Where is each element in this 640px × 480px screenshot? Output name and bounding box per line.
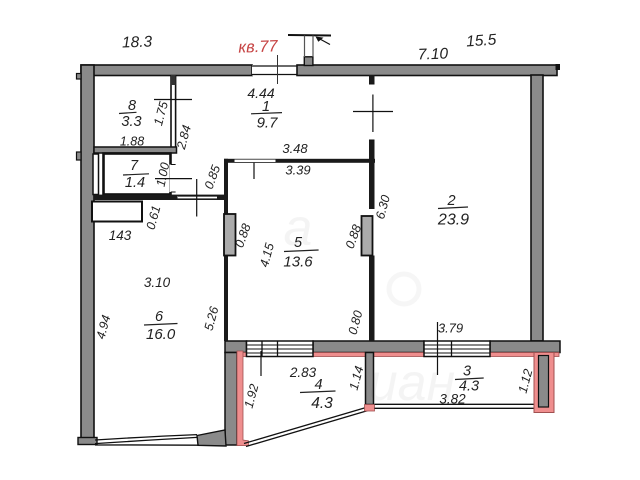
svg-text:4: 4 xyxy=(314,377,322,393)
svg-text:15.5: 15.5 xyxy=(466,31,498,50)
svg-text:9.7: 9.7 xyxy=(257,115,279,132)
svg-text:3: 3 xyxy=(463,364,471,380)
svg-text:7: 7 xyxy=(130,158,139,174)
svg-text:иан: иан xyxy=(369,354,455,412)
svg-text:1.88: 1.88 xyxy=(120,135,144,149)
svg-text:7.10: 7.10 xyxy=(418,45,449,63)
svg-text:1.4: 1.4 xyxy=(125,175,145,191)
svg-text:143: 143 xyxy=(109,228,132,243)
svg-text:3.79: 3.79 xyxy=(438,321,463,336)
svg-text:16.0: 16.0 xyxy=(146,326,176,343)
svg-text:3.3: 3.3 xyxy=(121,114,141,130)
svg-text:а: а xyxy=(284,199,313,257)
svg-text:3.10: 3.10 xyxy=(144,275,171,290)
svg-text:8: 8 xyxy=(128,98,136,114)
svg-text:23.9: 23.9 xyxy=(437,212,469,229)
svg-text:2.83: 2.83 xyxy=(289,365,317,380)
svg-text:18.3: 18.3 xyxy=(122,33,153,51)
svg-text:3.48: 3.48 xyxy=(282,141,308,156)
svg-text:кв.77: кв.77 xyxy=(238,37,279,56)
svg-text:6: 6 xyxy=(155,309,164,325)
svg-text:3.39: 3.39 xyxy=(285,163,310,178)
svg-text:2: 2 xyxy=(446,193,455,209)
svg-text:4.3: 4.3 xyxy=(311,395,333,412)
